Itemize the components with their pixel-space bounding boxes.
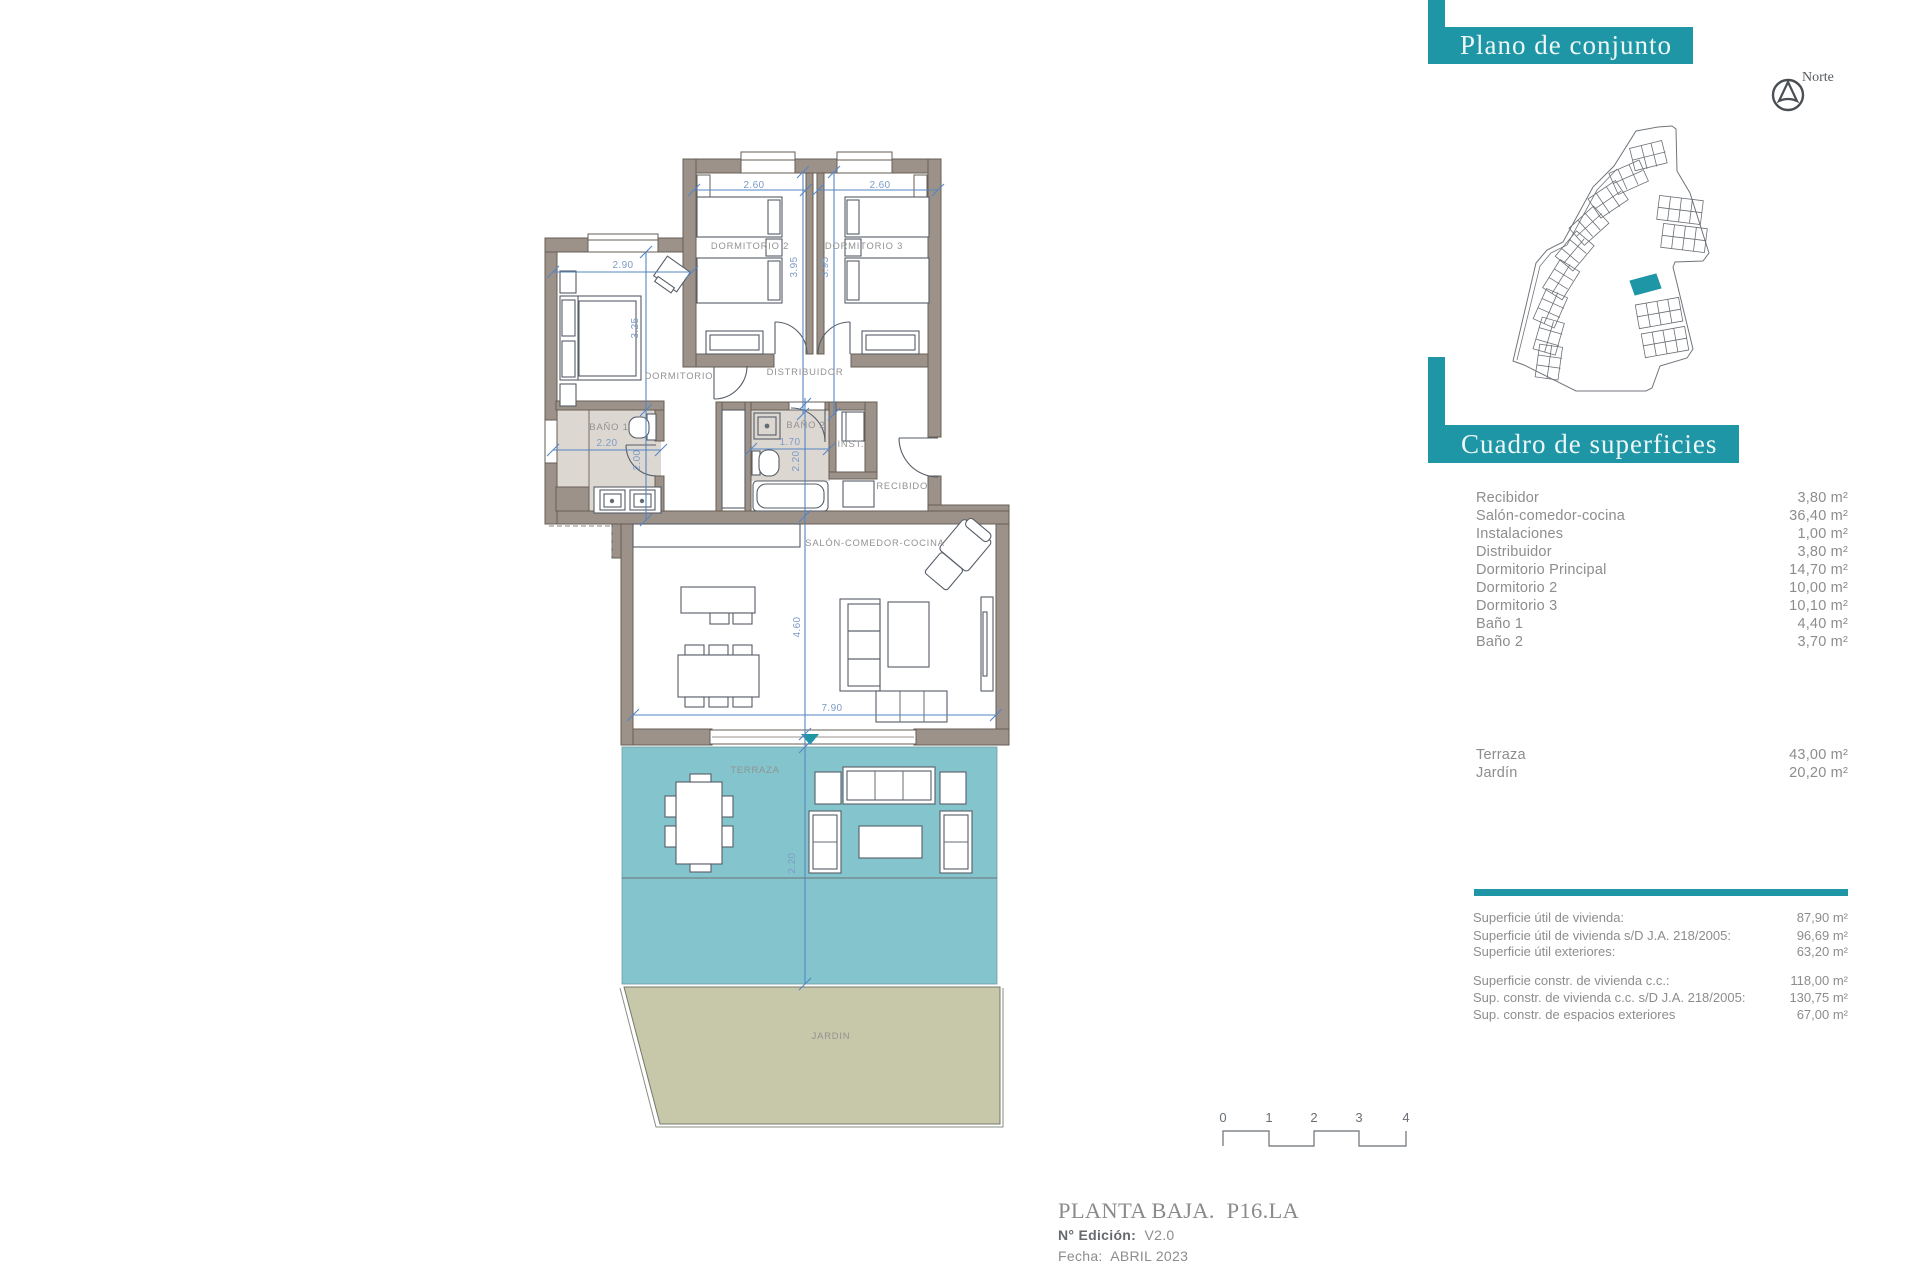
svg-text:INST.: INST. bbox=[838, 438, 865, 449]
svg-text:Baño 1: Baño 1 bbox=[1476, 616, 1523, 632]
svg-text:87,90 m²: 87,90 m² bbox=[1797, 910, 1849, 925]
svg-text:Sup. constr. de vivienda c.c.: Sup. constr. de vivienda c.c. s/D J.A. 2… bbox=[1473, 990, 1745, 1005]
svg-text:Dormitorio 3: Dormitorio 3 bbox=[1476, 598, 1557, 614]
svg-text:2.20: 2.20 bbox=[791, 450, 802, 471]
svg-text:JARDIN: JARDIN bbox=[812, 1030, 851, 1041]
svg-text:4,40 m²: 4,40 m² bbox=[1797, 616, 1848, 632]
svg-text:10,10 m²: 10,10 m² bbox=[1789, 598, 1848, 614]
svg-text:TERRAZA: TERRAZA bbox=[730, 764, 779, 775]
svg-text:2: 2 bbox=[1310, 1110, 1317, 1125]
svg-text:Sup. constr. de espacios exter: Sup. constr. de espacios exteriores bbox=[1473, 1007, 1676, 1022]
svg-text:Jardín: Jardín bbox=[1476, 765, 1518, 781]
svg-text:43,00 m²: 43,00 m² bbox=[1789, 747, 1848, 763]
svg-text:0: 0 bbox=[1219, 1110, 1226, 1125]
svg-text:Superficie útil de vivienda:: Superficie útil de vivienda: bbox=[1473, 910, 1624, 925]
svg-text:Plano de conjunto: Plano de conjunto bbox=[1460, 30, 1672, 60]
svg-text:96,69 m²: 96,69 m² bbox=[1797, 928, 1849, 943]
svg-text:1.70: 1.70 bbox=[779, 437, 800, 448]
svg-text:2.20: 2.20 bbox=[596, 438, 617, 449]
svg-text:Dormitorio Principal: Dormitorio Principal bbox=[1476, 562, 1607, 578]
svg-text:67,00 m²: 67,00 m² bbox=[1797, 1007, 1849, 1022]
svg-text:BAÑO 1: BAÑO 1 bbox=[589, 421, 628, 432]
svg-text:Fecha: ABRIL 2023: Fecha: ABRIL 2023 bbox=[1058, 1248, 1188, 1264]
svg-text:63,20 m²: 63,20 m² bbox=[1797, 944, 1849, 959]
svg-text:DORMITORIO 3: DORMITORIO 3 bbox=[825, 240, 903, 251]
svg-text:1: 1 bbox=[1265, 1110, 1272, 1125]
svg-text:118,00 m²: 118,00 m² bbox=[1790, 973, 1848, 988]
svg-text:2.60: 2.60 bbox=[743, 180, 764, 191]
svg-text:2.00: 2.00 bbox=[632, 449, 643, 470]
svg-text:RECIBIDOR: RECIBIDOR bbox=[876, 480, 935, 491]
svg-text:DISTRIBUIDOR: DISTRIBUIDOR bbox=[767, 366, 844, 377]
svg-text:3.25: 3.25 bbox=[630, 317, 641, 338]
svg-text:Dormitorio 2: Dormitorio 2 bbox=[1476, 580, 1557, 596]
svg-text:130,75 m²: 130,75 m² bbox=[1789, 990, 1848, 1005]
svg-text:Distribuidor: Distribuidor bbox=[1476, 544, 1552, 560]
svg-text:N° Edición: V2.0: N° Edición: V2.0 bbox=[1058, 1227, 1175, 1243]
svg-text:2.60: 2.60 bbox=[869, 180, 890, 191]
svg-text:3: 3 bbox=[1355, 1110, 1362, 1125]
svg-text:4.60: 4.60 bbox=[792, 616, 803, 637]
svg-text:BAÑO 2: BAÑO 2 bbox=[786, 419, 825, 430]
svg-text:PLANTA BAJA. P16.LA: PLANTA BAJA. P16.LA bbox=[1058, 1198, 1300, 1223]
svg-text:14,70 m²: 14,70 m² bbox=[1789, 562, 1848, 578]
svg-text:Superficie constr. de vivienda: Superficie constr. de vivienda c.c.: bbox=[1473, 973, 1670, 988]
svg-text:4: 4 bbox=[1402, 1110, 1409, 1125]
svg-text:7.90: 7.90 bbox=[821, 703, 842, 714]
svg-text:SALÓN-COMEDOR-COCINA: SALÓN-COMEDOR-COCINA bbox=[805, 537, 944, 548]
svg-text:3,70 m²: 3,70 m² bbox=[1797, 634, 1848, 650]
svg-text:Instalaciones: Instalaciones bbox=[1476, 526, 1563, 542]
svg-text:1,00 m²: 1,00 m² bbox=[1797, 526, 1848, 542]
svg-text:Norte: Norte bbox=[1802, 70, 1834, 85]
svg-text:Cuadro de superficies: Cuadro de superficies bbox=[1461, 429, 1717, 459]
svg-text:3.95: 3.95 bbox=[789, 256, 800, 277]
svg-text:Salón-comedor-cocina: Salón-comedor-cocina bbox=[1476, 508, 1626, 524]
svg-text:20,20 m²: 20,20 m² bbox=[1789, 765, 1848, 781]
svg-text:Superficie útil de vivienda s/: Superficie útil de vivienda s/D J.A. 218… bbox=[1473, 928, 1731, 943]
svg-text:Baño 2: Baño 2 bbox=[1476, 634, 1523, 650]
svg-text:Superficie útil exteriores:: Superficie útil exteriores: bbox=[1473, 944, 1615, 959]
svg-text:3,80 m²: 3,80 m² bbox=[1797, 544, 1848, 560]
svg-text:DORMITORIO: DORMITORIO bbox=[645, 370, 714, 381]
svg-text:Recibidor: Recibidor bbox=[1476, 490, 1539, 506]
svg-text:Terraza: Terraza bbox=[1476, 747, 1526, 763]
svg-text:10,00 m²: 10,00 m² bbox=[1789, 580, 1848, 596]
svg-text:DORMITORIO 2: DORMITORIO 2 bbox=[711, 240, 789, 251]
svg-text:2.90: 2.90 bbox=[612, 260, 633, 271]
svg-text:36,40 m²: 36,40 m² bbox=[1789, 508, 1848, 524]
svg-text:3.95: 3.95 bbox=[820, 256, 831, 277]
svg-text:2.20: 2.20 bbox=[787, 852, 798, 873]
svg-text:3,80 m²: 3,80 m² bbox=[1797, 490, 1848, 506]
